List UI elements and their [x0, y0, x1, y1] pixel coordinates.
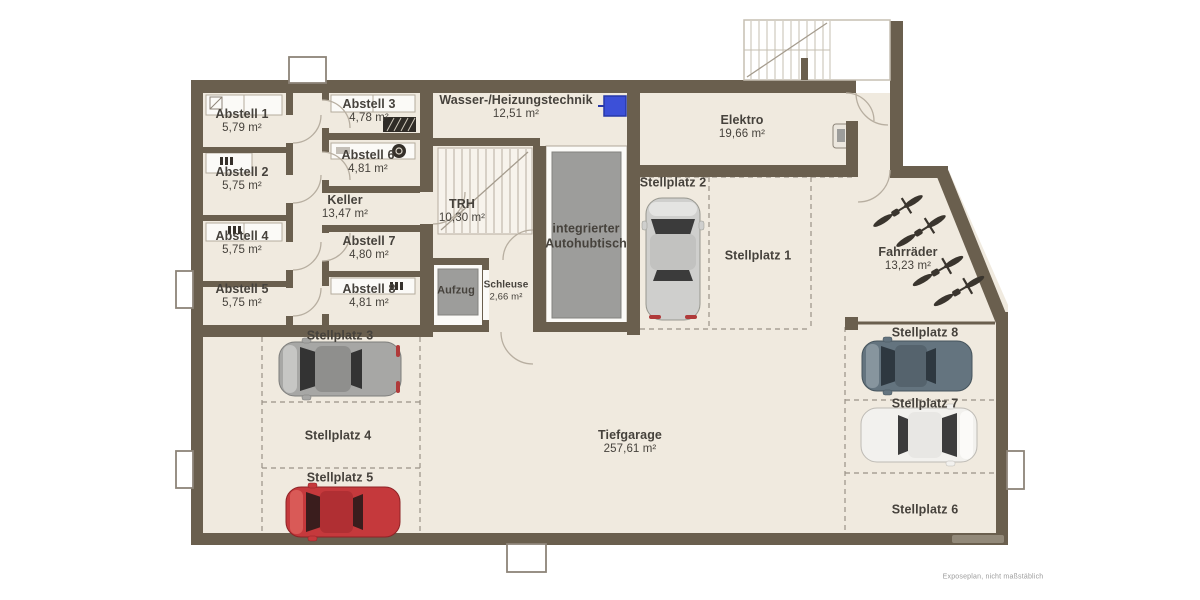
room-label-abstell-1: Abstell 15,79 m² [216, 107, 269, 135]
disclaimer-text: Exposeplan, nicht maßstäblich [943, 574, 1044, 581]
room-label-tiefgarage: Tiefgarage257,61 m² [598, 428, 662, 456]
room-label-schleuse: Schleuse2,66 m² [484, 280, 529, 303]
car-stellplatz-2 [642, 198, 704, 320]
room-label-abstell-5: Abstell 55,75 m² [216, 282, 269, 310]
floorplan-drawing [0, 0, 1200, 600]
room-label-elektro: Elektro19,66 m² [719, 113, 765, 141]
exterior-staircase [744, 20, 890, 80]
parking-label-stellplatz-4: Stellplatz 4 [305, 429, 372, 444]
parking-label-stellplatz-7: Stellplatz 7 [892, 397, 959, 412]
room-label-wasser-heizungstechnik: Wasser-/Heizungstechnik12,51 m² [439, 93, 592, 121]
car-stellplatz-3 [279, 338, 401, 400]
car-stellplatz-5 [286, 483, 400, 541]
room-label-abstell-3: Abstell 34,78 m² [343, 97, 396, 125]
parking-label-stellplatz-2: Stellplatz 2 [640, 176, 707, 191]
room-label-aufzug: Aufzug [437, 285, 475, 298]
parking-label-stellplatz-8: Stellplatz 8 [892, 326, 959, 341]
car-stellplatz-7 [861, 404, 977, 466]
room-label-abstell-4: Abstell 45,75 m² [216, 229, 269, 257]
parking-label-stellplatz-1: Stellplatz 1 [725, 249, 792, 264]
room-label-keller: Keller13,47 m² [322, 193, 368, 221]
parking-label-stellplatz-6: Stellplatz 6 [892, 503, 959, 518]
parking-label-stellplatz-5: Stellplatz 5 [307, 471, 374, 486]
wall-watermark [952, 535, 1004, 543]
room-label-abstell-7: Abstell 74,80 m² [343, 234, 396, 262]
car-stellplatz-8 [862, 337, 972, 395]
room-label-abstell-2: Abstell 25,75 m² [216, 165, 269, 193]
room-label-autohubtisch: integrierterAutohubtisch [545, 221, 627, 251]
room-label-trh: TRH10,30 m² [439, 197, 485, 225]
room-label-fahrraeder: Fahrräder13,23 m² [878, 245, 937, 273]
parking-label-stellplatz-3: Stellplatz 3 [307, 329, 374, 344]
room-label-abstell-6: Abstell 64,81 m² [342, 148, 395, 176]
floorplan-canvas: Abstell 15,79 m² Abstell 25,75 m² Abstel… [0, 0, 1200, 600]
room-label-abstell-8: Abstell 84,81 m² [343, 282, 396, 310]
